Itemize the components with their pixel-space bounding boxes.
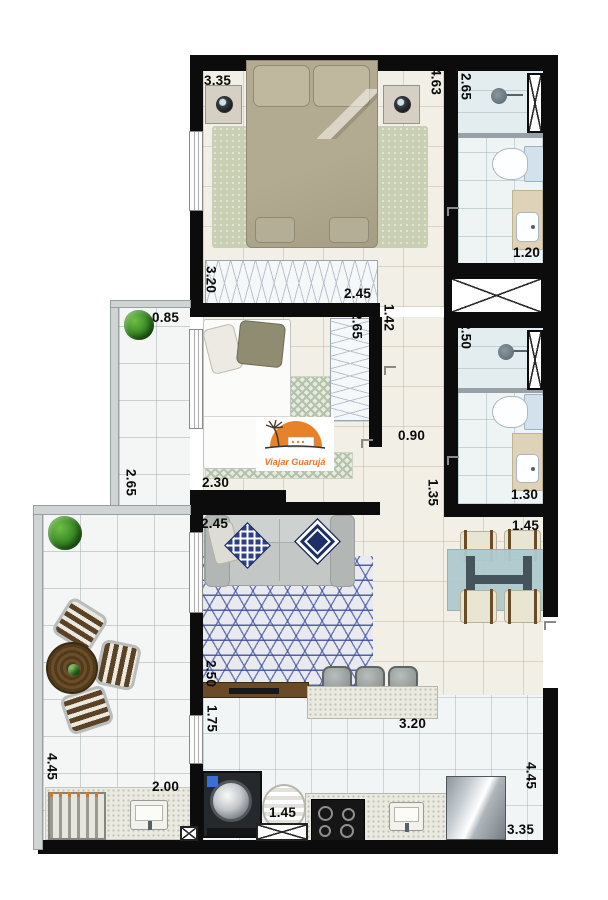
- faucet-icon: [148, 821, 152, 830]
- dimension-label: 2.65: [124, 469, 138, 496]
- dimension-label: 1.45: [512, 519, 539, 533]
- dimension-label: 4.45: [524, 762, 538, 789]
- terrace-railing: [33, 505, 191, 515]
- door-swing: [447, 207, 459, 216]
- foot-cushion: [329, 217, 369, 243]
- balcony-railing: [110, 300, 191, 308]
- dimension-label: 1.45: [269, 806, 296, 820]
- burner: [342, 808, 355, 821]
- sliding-door: [189, 715, 203, 764]
- dimension-label: 1.30: [511, 488, 538, 502]
- door-swing: [384, 366, 396, 375]
- bar-counter: [307, 686, 438, 719]
- wall: [190, 613, 203, 715]
- bathroom2-sink: [516, 454, 539, 483]
- terrace-table: [46, 642, 98, 694]
- dimension-label: 4.45: [45, 753, 59, 780]
- dimension-label: 1.42: [382, 304, 396, 331]
- burner: [319, 825, 331, 837]
- centerpiece-icon: [68, 664, 80, 676]
- shower-head-icon: [491, 88, 507, 104]
- faucet-icon: [405, 823, 409, 832]
- entrance-door-swing: [544, 621, 556, 630]
- wall: [543, 688, 558, 848]
- shower-divider: [458, 133, 543, 138]
- burner: [318, 806, 333, 821]
- faucet-icon: [531, 225, 535, 229]
- balcony-railing: [110, 300, 119, 512]
- wall: [190, 502, 380, 515]
- laundry-sink: [130, 800, 168, 830]
- washer-panel: [207, 828, 257, 836]
- window: [189, 131, 203, 211]
- tv-icon: [229, 688, 279, 694]
- sink-basin: [135, 805, 163, 821]
- wall: [38, 840, 558, 854]
- shower-glass: [527, 73, 543, 133]
- dimension-label: 3.20: [204, 266, 218, 293]
- shaft: [449, 276, 544, 315]
- sink-basin: [394, 807, 419, 822]
- dimension-label: 2.65: [459, 73, 473, 100]
- dimension-label: 0.85: [152, 311, 179, 325]
- vent-box: [256, 823, 308, 841]
- dimension-label: 2.50: [459, 322, 473, 349]
- drying-rack: [48, 792, 106, 840]
- lamp-icon: [216, 96, 233, 113]
- dimension-label: 0.90: [398, 429, 425, 443]
- washer-badge: [207, 776, 218, 787]
- wall: [444, 504, 558, 517]
- dimension-label: 3.20: [399, 717, 426, 731]
- wall: [444, 315, 458, 511]
- sofa-seam: [279, 519, 280, 581]
- toilet-icon: [492, 148, 528, 180]
- bathroom1-sink: [516, 212, 539, 242]
- floor-plan-canvas: Viajar Guarujá 3.354.632.651.203.202.450…: [0, 0, 608, 900]
- nightstand-left: [205, 85, 242, 124]
- pillow: [253, 65, 310, 107]
- dining-chair: [460, 590, 497, 623]
- terrace-railing: [33, 505, 43, 850]
- vent-box: [180, 826, 198, 841]
- cooktop-icon: [311, 799, 365, 841]
- blanket-fold: [317, 89, 377, 139]
- lamp-icon: [394, 96, 411, 113]
- sofa-arm: [330, 515, 355, 587]
- dimension-label: 2.50: [204, 660, 218, 687]
- door-swing: [447, 456, 459, 465]
- dimension-label: 3.35: [507, 823, 534, 837]
- dimension-label: 2.65: [350, 312, 364, 339]
- plant-icon: [48, 516, 82, 550]
- dimension-label: 1.20: [513, 246, 540, 260]
- foot-cushion: [255, 217, 295, 243]
- dining-chair: [504, 590, 541, 623]
- dimension-label: 4.63: [429, 68, 443, 95]
- table-runner: [466, 575, 532, 584]
- kitchen-sink: [389, 802, 424, 831]
- pillow: [236, 320, 286, 369]
- door-swing: [361, 439, 373, 448]
- plant-icon: [124, 310, 154, 340]
- wall: [369, 317, 382, 447]
- toilet-icon: [492, 396, 528, 428]
- dimension-label: 1.75: [205, 705, 219, 732]
- double-bed: [246, 60, 378, 248]
- window: [189, 329, 203, 429]
- dimension-label: 2.30: [202, 476, 229, 490]
- wall: [543, 55, 558, 617]
- fridge-icon: [446, 776, 506, 840]
- wall: [444, 263, 558, 276]
- shower-head-icon: [498, 344, 514, 360]
- brand-name: Viajar Guarujá: [256, 458, 334, 467]
- clips-row: [50, 792, 104, 797]
- dimension-label: 1.35: [426, 479, 440, 506]
- nightstand-right: [383, 85, 420, 124]
- shower-glass: [527, 330, 543, 390]
- burner: [340, 824, 354, 838]
- sliding-door: [189, 532, 203, 613]
- dimension-label: 2.45: [201, 517, 228, 531]
- dimension-label: 3.35: [204, 74, 231, 88]
- brand-logo-graphic: [262, 419, 328, 453]
- dimension-label: 2.00: [152, 780, 179, 794]
- faucet-icon: [531, 467, 535, 471]
- washing-machine-icon: [202, 771, 262, 838]
- dimension-label: 2.45: [344, 287, 371, 301]
- brand-watermark: Viajar Guarujá: [256, 417, 334, 471]
- shower-arm-icon: [505, 94, 523, 96]
